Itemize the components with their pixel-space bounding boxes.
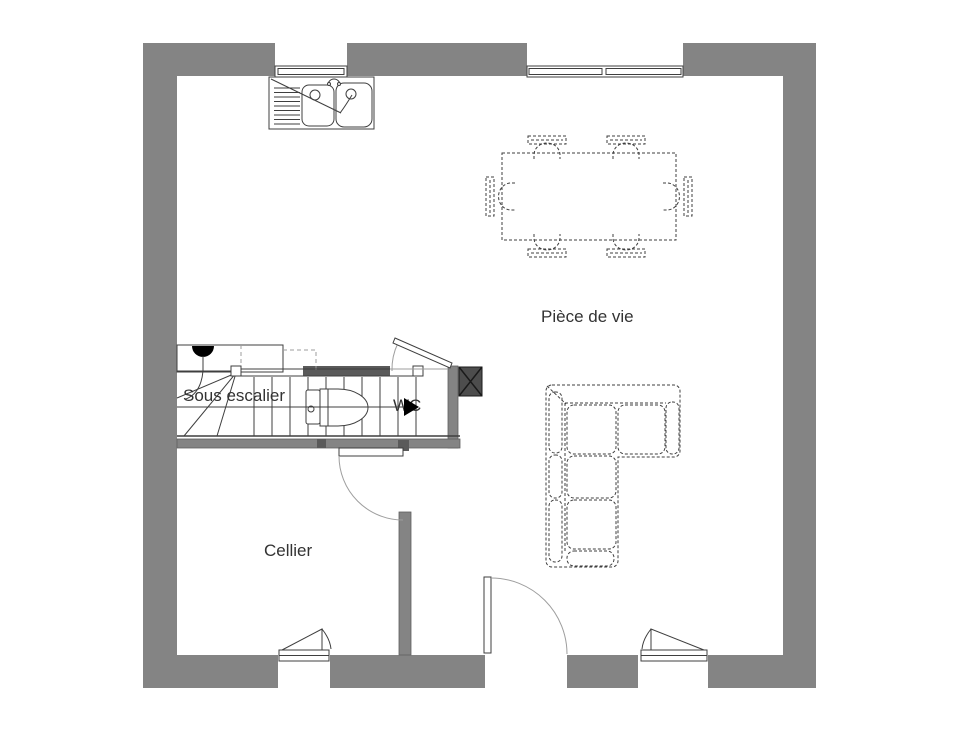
corner-sofa-icon [546,385,680,567]
living-room-window [527,66,683,77]
handrail-post [413,366,423,376]
kitchen-double-sink-icon [269,77,374,129]
floor-plan: Sous escalier WC Pièce de vie Cellier [0,0,960,732]
wc-room [306,338,452,426]
exterior-walls [143,43,816,688]
wall-bottom-right-2 [708,655,816,688]
wc-door-leaf [393,338,452,368]
cellar-window [279,629,331,661]
entry-door-swing-arc [491,578,567,654]
entry-door-leaf [484,577,491,653]
wall-bottom-right-1 [567,655,638,688]
kitchen-window [275,66,347,77]
room-label-under-stairs: Sous escalier [183,386,285,405]
wall-left [143,43,177,688]
wc-door-swing-arc [392,343,398,371]
living-room-small-window [641,629,707,661]
handrail-post [231,366,241,376]
cellar-door-swing-arc [339,456,403,520]
wall-top-middle [347,43,527,76]
room-label-cellar: Cellier [264,541,313,560]
wall-bottom-left [143,655,278,688]
partition-cellar-living [399,512,411,655]
wall-right [783,43,816,688]
stair-newel-icon [192,346,214,357]
cellar-door-leaf [339,448,403,456]
cellar-door [339,440,409,520]
dining-table-icon [502,153,676,240]
floor-plan-drawing: Sous escalier WC Pièce de vie Cellier [0,0,960,732]
room-label-living-room: Pièce de vie [541,307,634,326]
entry-door [484,577,567,654]
wall-junction-post [317,439,326,448]
dining-set [486,136,692,257]
wall-bottom-middle [330,655,485,688]
duct-column [459,367,482,396]
